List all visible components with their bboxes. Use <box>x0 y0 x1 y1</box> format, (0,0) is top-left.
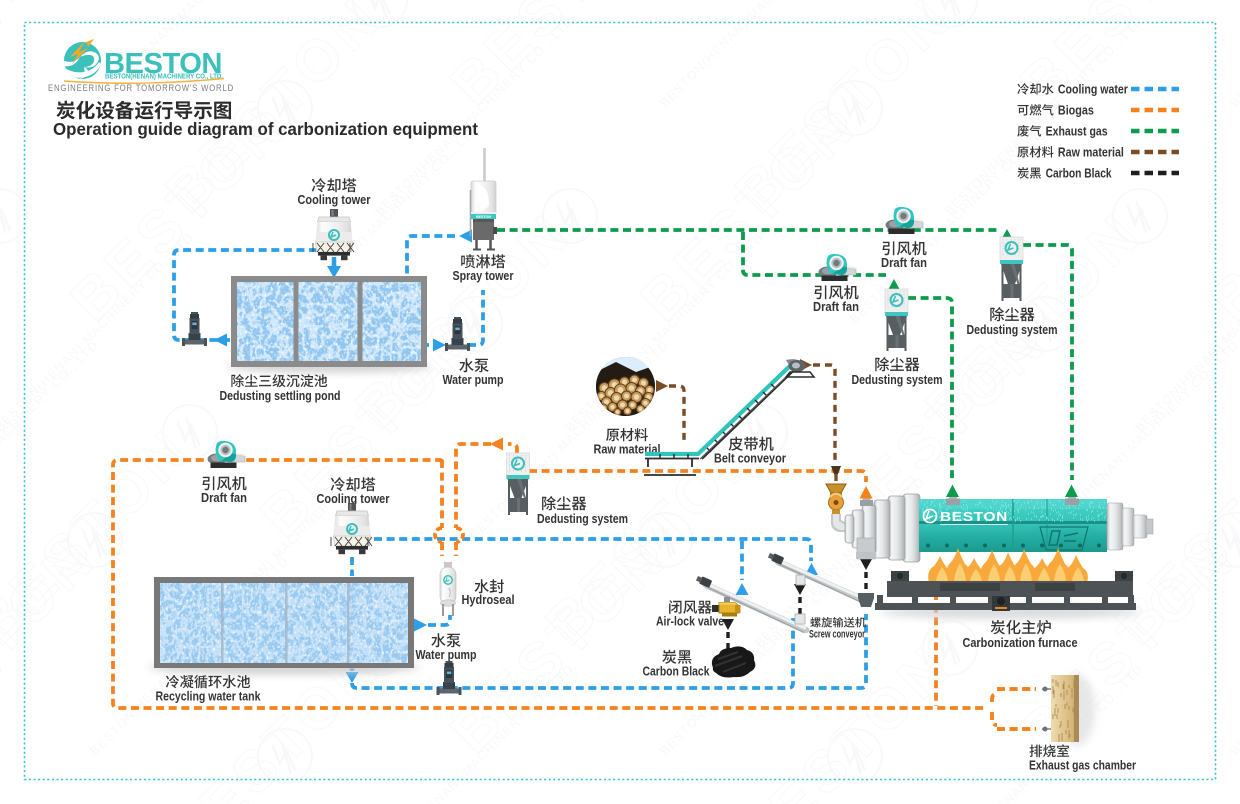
svg-text:Draft fan: Draft fan <box>813 300 859 314</box>
svg-text:Dedusting settling pond: Dedusting settling pond <box>220 388 341 403</box>
svg-text:Belt conveyor: Belt conveyor <box>714 452 786 466</box>
svg-text:Dedusting system: Dedusting system <box>537 512 628 526</box>
svg-text:Spray tower: Spray tower <box>453 269 514 283</box>
svg-text:Water pump: Water pump <box>443 373 504 387</box>
svg-text:Cooling tower: Cooling tower <box>298 193 371 207</box>
svg-text:Draft fan: Draft fan <box>201 491 247 505</box>
svg-text:Operation guide diagram of car: Operation guide diagram of carbonization… <box>53 119 478 139</box>
svg-text:Biogas: Biogas <box>1058 104 1094 118</box>
svg-text:BESTON(HENAN) MACHINERY CO., L: BESTON(HENAN) MACHINERY CO., LTD. <box>105 72 223 81</box>
svg-text:Carbonization furnace: Carbonization furnace <box>963 635 1078 650</box>
svg-text:BESTON: BESTON <box>476 215 491 219</box>
svg-text:ENGINEERING FOR TOMORROW'S WOR: ENGINEERING FOR TOMORROW'S WORLD <box>48 83 234 94</box>
svg-text:Carbon Black: Carbon Black <box>643 665 710 679</box>
svg-text:Dedusting system: Dedusting system <box>852 373 943 387</box>
svg-text:Water pump: Water pump <box>416 648 477 662</box>
svg-text:Hydroseal: Hydroseal <box>462 593 515 607</box>
svg-text:Exhaust gas chamber: Exhaust gas chamber <box>1029 759 1136 773</box>
svg-text:BESTON: BESTON <box>940 510 1008 524</box>
svg-text:Carbon Black: Carbon Black <box>1046 167 1113 181</box>
svg-text:Dedusting system: Dedusting system <box>967 323 1058 337</box>
svg-text:Exhaust gas: Exhaust gas <box>1046 125 1108 139</box>
svg-text:Screw conveyor: Screw conveyor <box>809 629 865 641</box>
svg-text:Draft fan: Draft fan <box>881 256 927 270</box>
svg-text:Raw material: Raw material <box>1058 146 1124 160</box>
svg-text:Recycling water tank: Recycling water tank <box>156 689 262 704</box>
svg-text:Cooling water: Cooling water <box>1058 83 1128 97</box>
svg-text:Air-lock valve: Air-lock valve <box>656 615 724 629</box>
